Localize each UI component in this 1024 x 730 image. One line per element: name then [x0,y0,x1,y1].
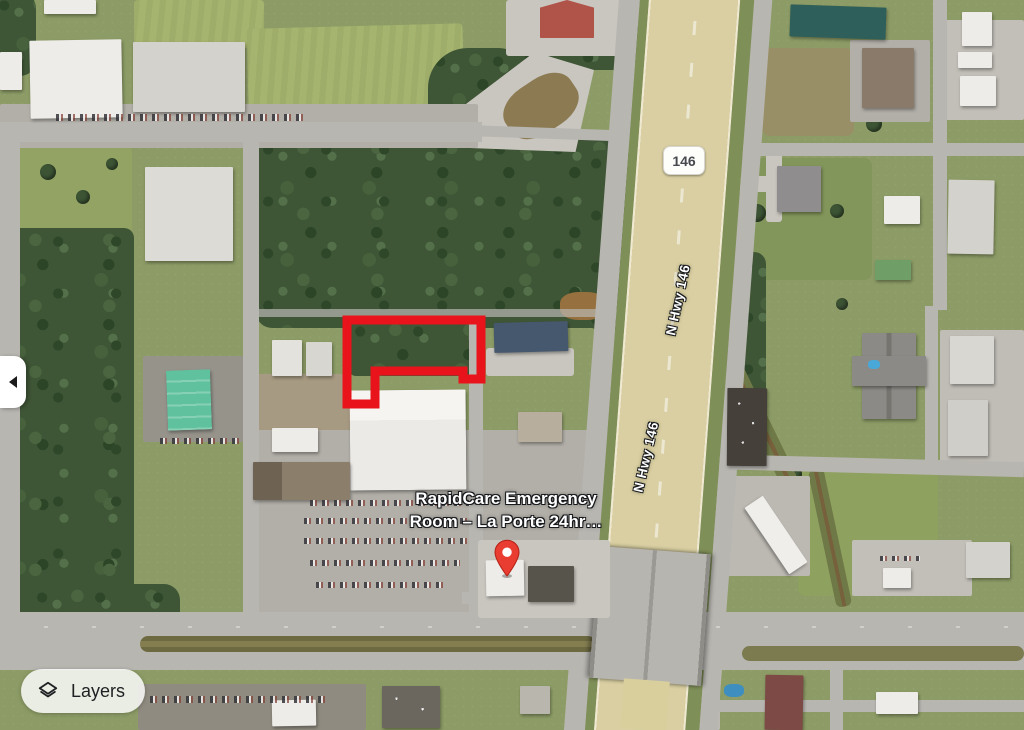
building [145,167,233,261]
building [0,52,22,90]
building [382,686,440,728]
forest-patch [348,318,476,376]
parked-trucks [56,114,306,121]
building [777,166,821,212]
tree-icon [106,158,118,170]
highway-shield-label: 146 [672,153,695,169]
location-pin-icon[interactable] [493,539,521,579]
field-patch [134,0,264,48]
building [272,700,316,727]
junk-yard [250,374,350,430]
highway-approach [620,678,670,730]
road [0,122,482,142]
building [520,686,550,714]
building [966,542,1010,578]
green-roof-building [875,260,911,280]
building [528,566,574,602]
layers-button[interactable]: Layers [21,669,145,713]
building [883,568,911,588]
layers-icon [37,680,59,702]
chevron-left-icon [9,376,17,388]
teal-roof-building [789,4,886,39]
parked-cars [316,582,446,588]
parked-cars [304,538,472,544]
building [133,42,245,112]
apartment-wing [852,356,926,386]
red-roof-building [765,675,804,730]
road-median [742,646,1024,661]
parked-cars [310,560,460,566]
place-label-line2: Room – La Porte 24hr… [410,510,603,533]
building [962,12,992,46]
road-median [140,636,596,652]
layers-button-label: Layers [71,681,125,702]
blue-roof-building [494,321,569,353]
swimming-pool [724,684,744,697]
building [306,342,332,376]
building [272,428,318,452]
building [960,76,996,106]
big-store-building [350,389,467,490]
brown-building [253,462,350,500]
parking-lot [852,540,972,596]
collapse-panel-button[interactable] [0,356,26,408]
place-label[interactable]: RapidCare Emergency Room – La Porte 24hr… [410,487,603,533]
tree-icon [836,298,848,310]
parked-trucks [150,696,330,703]
road [925,306,938,464]
building [29,39,122,119]
parked-cars [880,556,920,561]
parked-cars [160,438,240,444]
building [518,412,562,442]
building [876,692,918,714]
satellite-map[interactable]: 146 N Hwy 146 N Hwy 146 RapidCare Emerge… [0,0,1024,730]
swimming-pool [868,360,880,369]
building [948,400,988,456]
building [44,0,96,14]
dark-building [727,388,768,466]
tree-icon [40,164,56,180]
building [958,52,992,68]
forest-patch [0,228,134,630]
highway-shield: 146 [663,146,705,175]
building [272,340,302,376]
teal-roof-building [166,369,212,430]
building [884,196,920,224]
building [950,336,994,384]
tree-icon [76,190,90,204]
building [862,48,914,108]
road [933,0,947,310]
warehouse-building [947,180,994,255]
tree-icon [830,204,844,218]
road [243,140,259,626]
place-label-line1: RapidCare Emergency [410,487,603,510]
industrial-lot [138,684,366,730]
red-roof-building [540,0,594,38]
